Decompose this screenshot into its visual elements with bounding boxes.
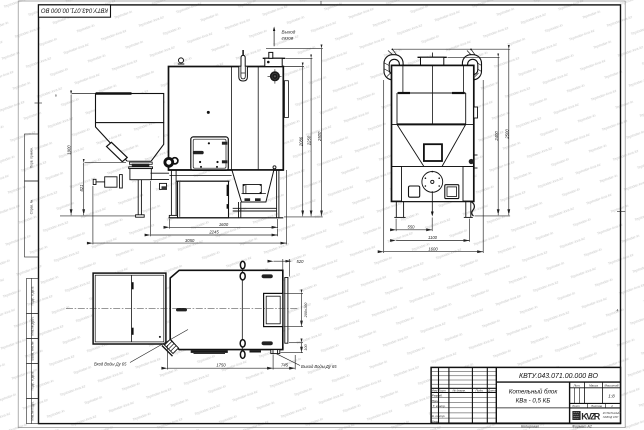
svg-text:100: 100 — [304, 343, 308, 350]
svg-text:Изм Лист: Изм Лист — [432, 389, 447, 393]
svg-text:Перв. примен.: Перв. примен. — [30, 147, 34, 168]
svg-text:KVZR: KVZR — [581, 411, 601, 421]
svg-text:1:8: 1:8 — [608, 394, 615, 399]
svg-text:Выход Воды Ду 65: Выход Воды Ду 65 — [301, 364, 337, 369]
svg-text:КВТУ.043.071.00.000 ВО: КВТУ.043.071.00.000 ВО — [519, 371, 598, 380]
svg-text:Н. контр.: Н. контр. — [432, 414, 446, 418]
svg-text:2250: 2250 — [307, 135, 312, 146]
svg-text:Масса: Масса — [589, 383, 598, 387]
svg-text:в: в — [55, 94, 57, 98]
svg-text:Дата: Дата — [487, 389, 496, 393]
svg-text:Подп. и дата: Подп. и дата — [31, 286, 35, 305]
svg-text:Инв.№ подл.: Инв.№ подл. — [31, 401, 35, 420]
svg-text:газов: газов — [282, 36, 294, 41]
svg-text:745: 745 — [281, 363, 289, 368]
svg-text:2086: 2086 — [298, 136, 303, 147]
svg-text:2245: 2245 — [208, 230, 219, 235]
svg-text:520: 520 — [297, 259, 305, 264]
svg-text:Лит.: Лит. — [572, 383, 580, 387]
svg-text:200±100: 200±100 — [304, 302, 308, 319]
svg-text:Т. контр.: Т. контр. — [433, 404, 446, 408]
svg-text:2400: 2400 — [494, 131, 499, 142]
svg-text:2500: 2500 — [505, 129, 510, 140]
svg-text:ЗАВОД КЗР: ЗАВОД КЗР — [603, 415, 619, 419]
svg-text:1900: 1900 — [66, 145, 71, 155]
svg-text:№ докум.: № докум. — [453, 389, 466, 393]
svg-text:Масштаб: Масштаб — [604, 383, 618, 387]
svg-text:Формат А2: Формат А2 — [572, 424, 592, 428]
svg-text:Вход Воды Ду 65: Вход Воды Ду 65 — [94, 362, 127, 367]
svg-text:Подп. и дата: Подп. и дата — [31, 371, 35, 390]
svg-text:550: 550 — [408, 225, 416, 230]
svg-text:Копировал: Копировал — [521, 424, 539, 428]
svg-text:Утв.: Утв. — [432, 419, 439, 423]
svg-text:Разраб.: Разраб. — [432, 394, 443, 398]
svg-text:Справ. №: Справ. № — [30, 199, 34, 214]
svg-text:1600: 1600 — [219, 222, 229, 227]
svg-text:4: 4 — [617, 309, 619, 313]
svg-text:Подп.: Подп. — [476, 389, 484, 393]
svg-text:1600: 1600 — [428, 246, 438, 251]
svg-text:Котельный блок: Котельный блок — [509, 389, 559, 396]
svg-text:Взам. инв.№: Взам. инв.№ — [31, 341, 35, 360]
svg-text:Листов: Листов — [590, 404, 602, 408]
svg-text:1750: 1750 — [216, 363, 226, 368]
svg-text:821: 821 — [79, 185, 84, 192]
svg-text:Лист: Лист — [571, 404, 580, 408]
svg-text:3050: 3050 — [185, 238, 195, 243]
svg-text:Инв.№ дубл.: Инв.№ дубл. — [31, 316, 35, 335]
svg-text:1100: 1100 — [428, 235, 438, 240]
svg-text:Выход: Выход — [282, 30, 296, 35]
svg-text:КВТУ.043.071.00.000 ВО: КВТУ.043.071.00.000 ВО — [41, 7, 108, 13]
svg-text:2500: 2500 — [317, 131, 322, 142]
svg-text:КВа - 0,5 КБ: КВа - 0,5 КБ — [516, 398, 551, 405]
svg-text:Пров.: Пров. — [432, 399, 440, 403]
